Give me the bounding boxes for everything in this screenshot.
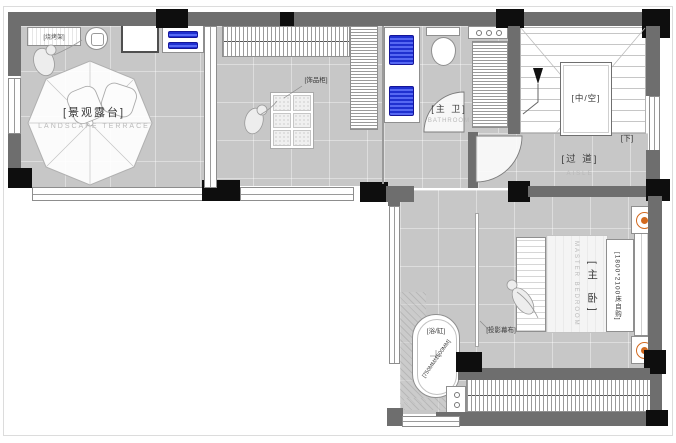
window bbox=[240, 187, 354, 201]
sink-basin bbox=[389, 35, 414, 65]
projection-screen-label: [投影幕布] bbox=[477, 327, 525, 334]
wall-segment bbox=[528, 186, 652, 197]
bed-foot-bench bbox=[516, 237, 546, 332]
bbq-rack: [烧烤架] bbox=[27, 27, 81, 46]
corridor-label-en: AISLE bbox=[546, 171, 614, 178]
bath-cabinet bbox=[446, 386, 466, 414]
terrace-label: [景观露台] bbox=[34, 107, 154, 120]
cabinet-cell bbox=[273, 113, 291, 129]
cabinet-cell bbox=[273, 130, 291, 146]
cabinet-knob bbox=[454, 402, 460, 408]
terrace-table bbox=[121, 23, 159, 53]
cabinet-cell bbox=[273, 95, 291, 111]
cabinet-cell bbox=[293, 130, 311, 146]
column bbox=[360, 182, 388, 202]
ornament-cabinet bbox=[270, 92, 314, 149]
wall-segment bbox=[436, 412, 656, 426]
wardrobe-side bbox=[350, 26, 378, 130]
bed-size-note: [1800*2100床自购] bbox=[613, 244, 620, 328]
lounger-cushion bbox=[168, 31, 198, 38]
wall-segment bbox=[648, 196, 662, 352]
window bbox=[402, 416, 460, 427]
wardrobe-bottom bbox=[466, 378, 652, 412]
washstand-knob bbox=[486, 30, 492, 36]
ornament-cabinet-label: [饰品柜] bbox=[290, 77, 342, 84]
floor-plan: [烧烤架] bbox=[0, 0, 676, 443]
wall-segment bbox=[8, 12, 660, 26]
wall-line bbox=[382, 26, 384, 184]
cabinet-cell bbox=[293, 95, 311, 111]
terrace-label-en: LANDSCAPE TERRACE bbox=[24, 123, 164, 131]
cabinet-cell bbox=[293, 113, 311, 129]
stair-void-box: [中/空] bbox=[560, 62, 612, 136]
window bbox=[32, 187, 204, 201]
bbq-rack-label: [烧烤架] bbox=[28, 28, 80, 45]
column bbox=[646, 410, 668, 426]
side-table bbox=[85, 27, 108, 50]
toilet-tank bbox=[426, 27, 460, 36]
wall-segment bbox=[458, 368, 650, 380]
glazed-partition bbox=[204, 26, 217, 188]
column bbox=[508, 181, 530, 202]
master-bath-label-en: BATHROOM bbox=[426, 118, 472, 125]
wall-segment bbox=[387, 408, 403, 426]
corridor-label: [过 道] bbox=[546, 155, 614, 166]
master-bath-label: [主 卫] bbox=[426, 104, 472, 114]
window bbox=[8, 78, 21, 134]
terrace-lounger bbox=[162, 25, 204, 53]
column bbox=[8, 168, 32, 188]
wall-segment bbox=[8, 14, 21, 76]
side-table-top bbox=[91, 33, 104, 46]
stair-down-label: [下] bbox=[612, 134, 642, 143]
column bbox=[280, 12, 294, 26]
wardrobe-top bbox=[222, 26, 350, 57]
window bbox=[649, 96, 660, 152]
sink-basin bbox=[389, 86, 414, 116]
lounger-cushion bbox=[168, 42, 198, 49]
void-label: [中/空] bbox=[571, 94, 600, 104]
cabinet-knob bbox=[454, 392, 460, 398]
window bbox=[389, 206, 400, 364]
wall-segment bbox=[388, 192, 400, 206]
shower-bench bbox=[472, 41, 508, 128]
wall-segment bbox=[8, 134, 21, 170]
column bbox=[456, 352, 482, 372]
wall-segment bbox=[508, 26, 520, 134]
master-bedroom-label-en: MASTER BEDROOM bbox=[572, 238, 579, 330]
washstand-knob bbox=[476, 30, 482, 36]
washstand-knob bbox=[496, 30, 502, 36]
wall-segment bbox=[646, 26, 660, 96]
master-bedroom-label: [主 卧] bbox=[586, 250, 598, 326]
column bbox=[156, 9, 188, 28]
wall-segment bbox=[468, 132, 478, 188]
